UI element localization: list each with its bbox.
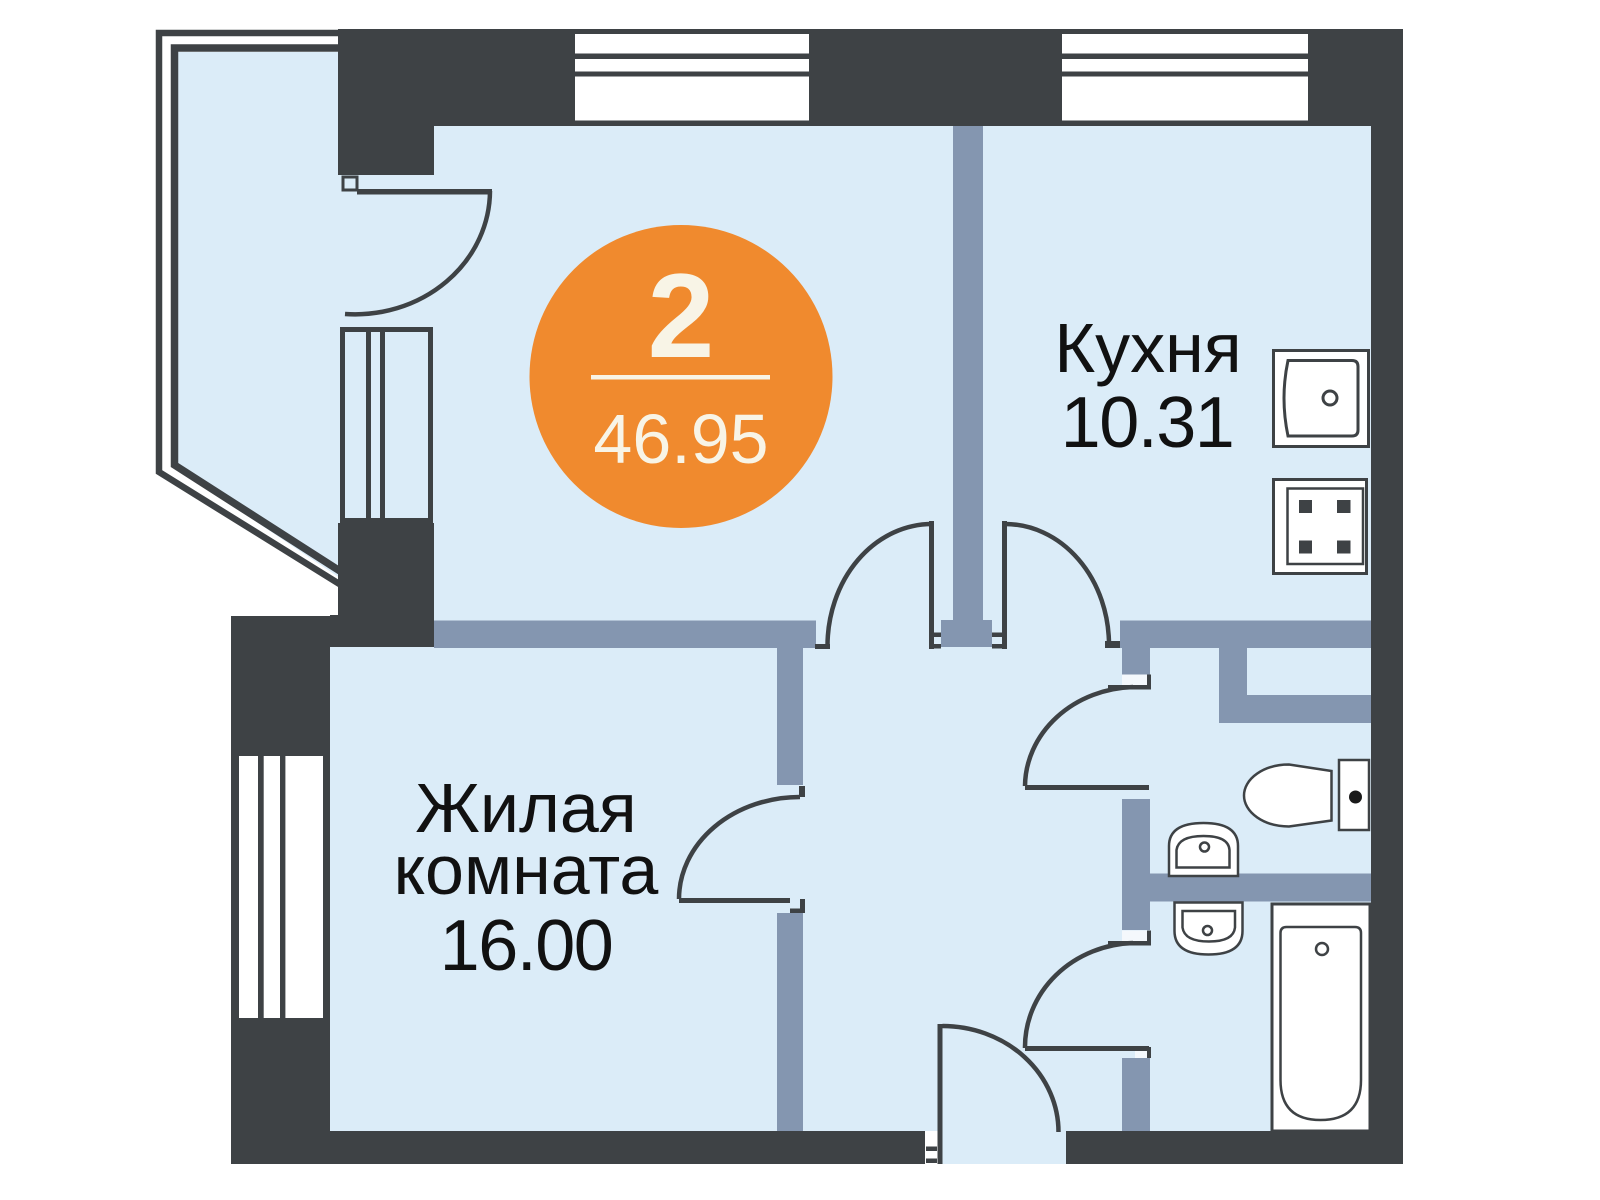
svg-text:комната: комната bbox=[394, 831, 659, 909]
svg-text:16.00: 16.00 bbox=[440, 906, 613, 986]
svg-text:Кухня: Кухня bbox=[1054, 309, 1241, 387]
svg-text:46.95: 46.95 bbox=[593, 400, 768, 478]
svg-text:10.31: 10.31 bbox=[1061, 383, 1234, 463]
svg-text:2: 2 bbox=[648, 249, 715, 383]
